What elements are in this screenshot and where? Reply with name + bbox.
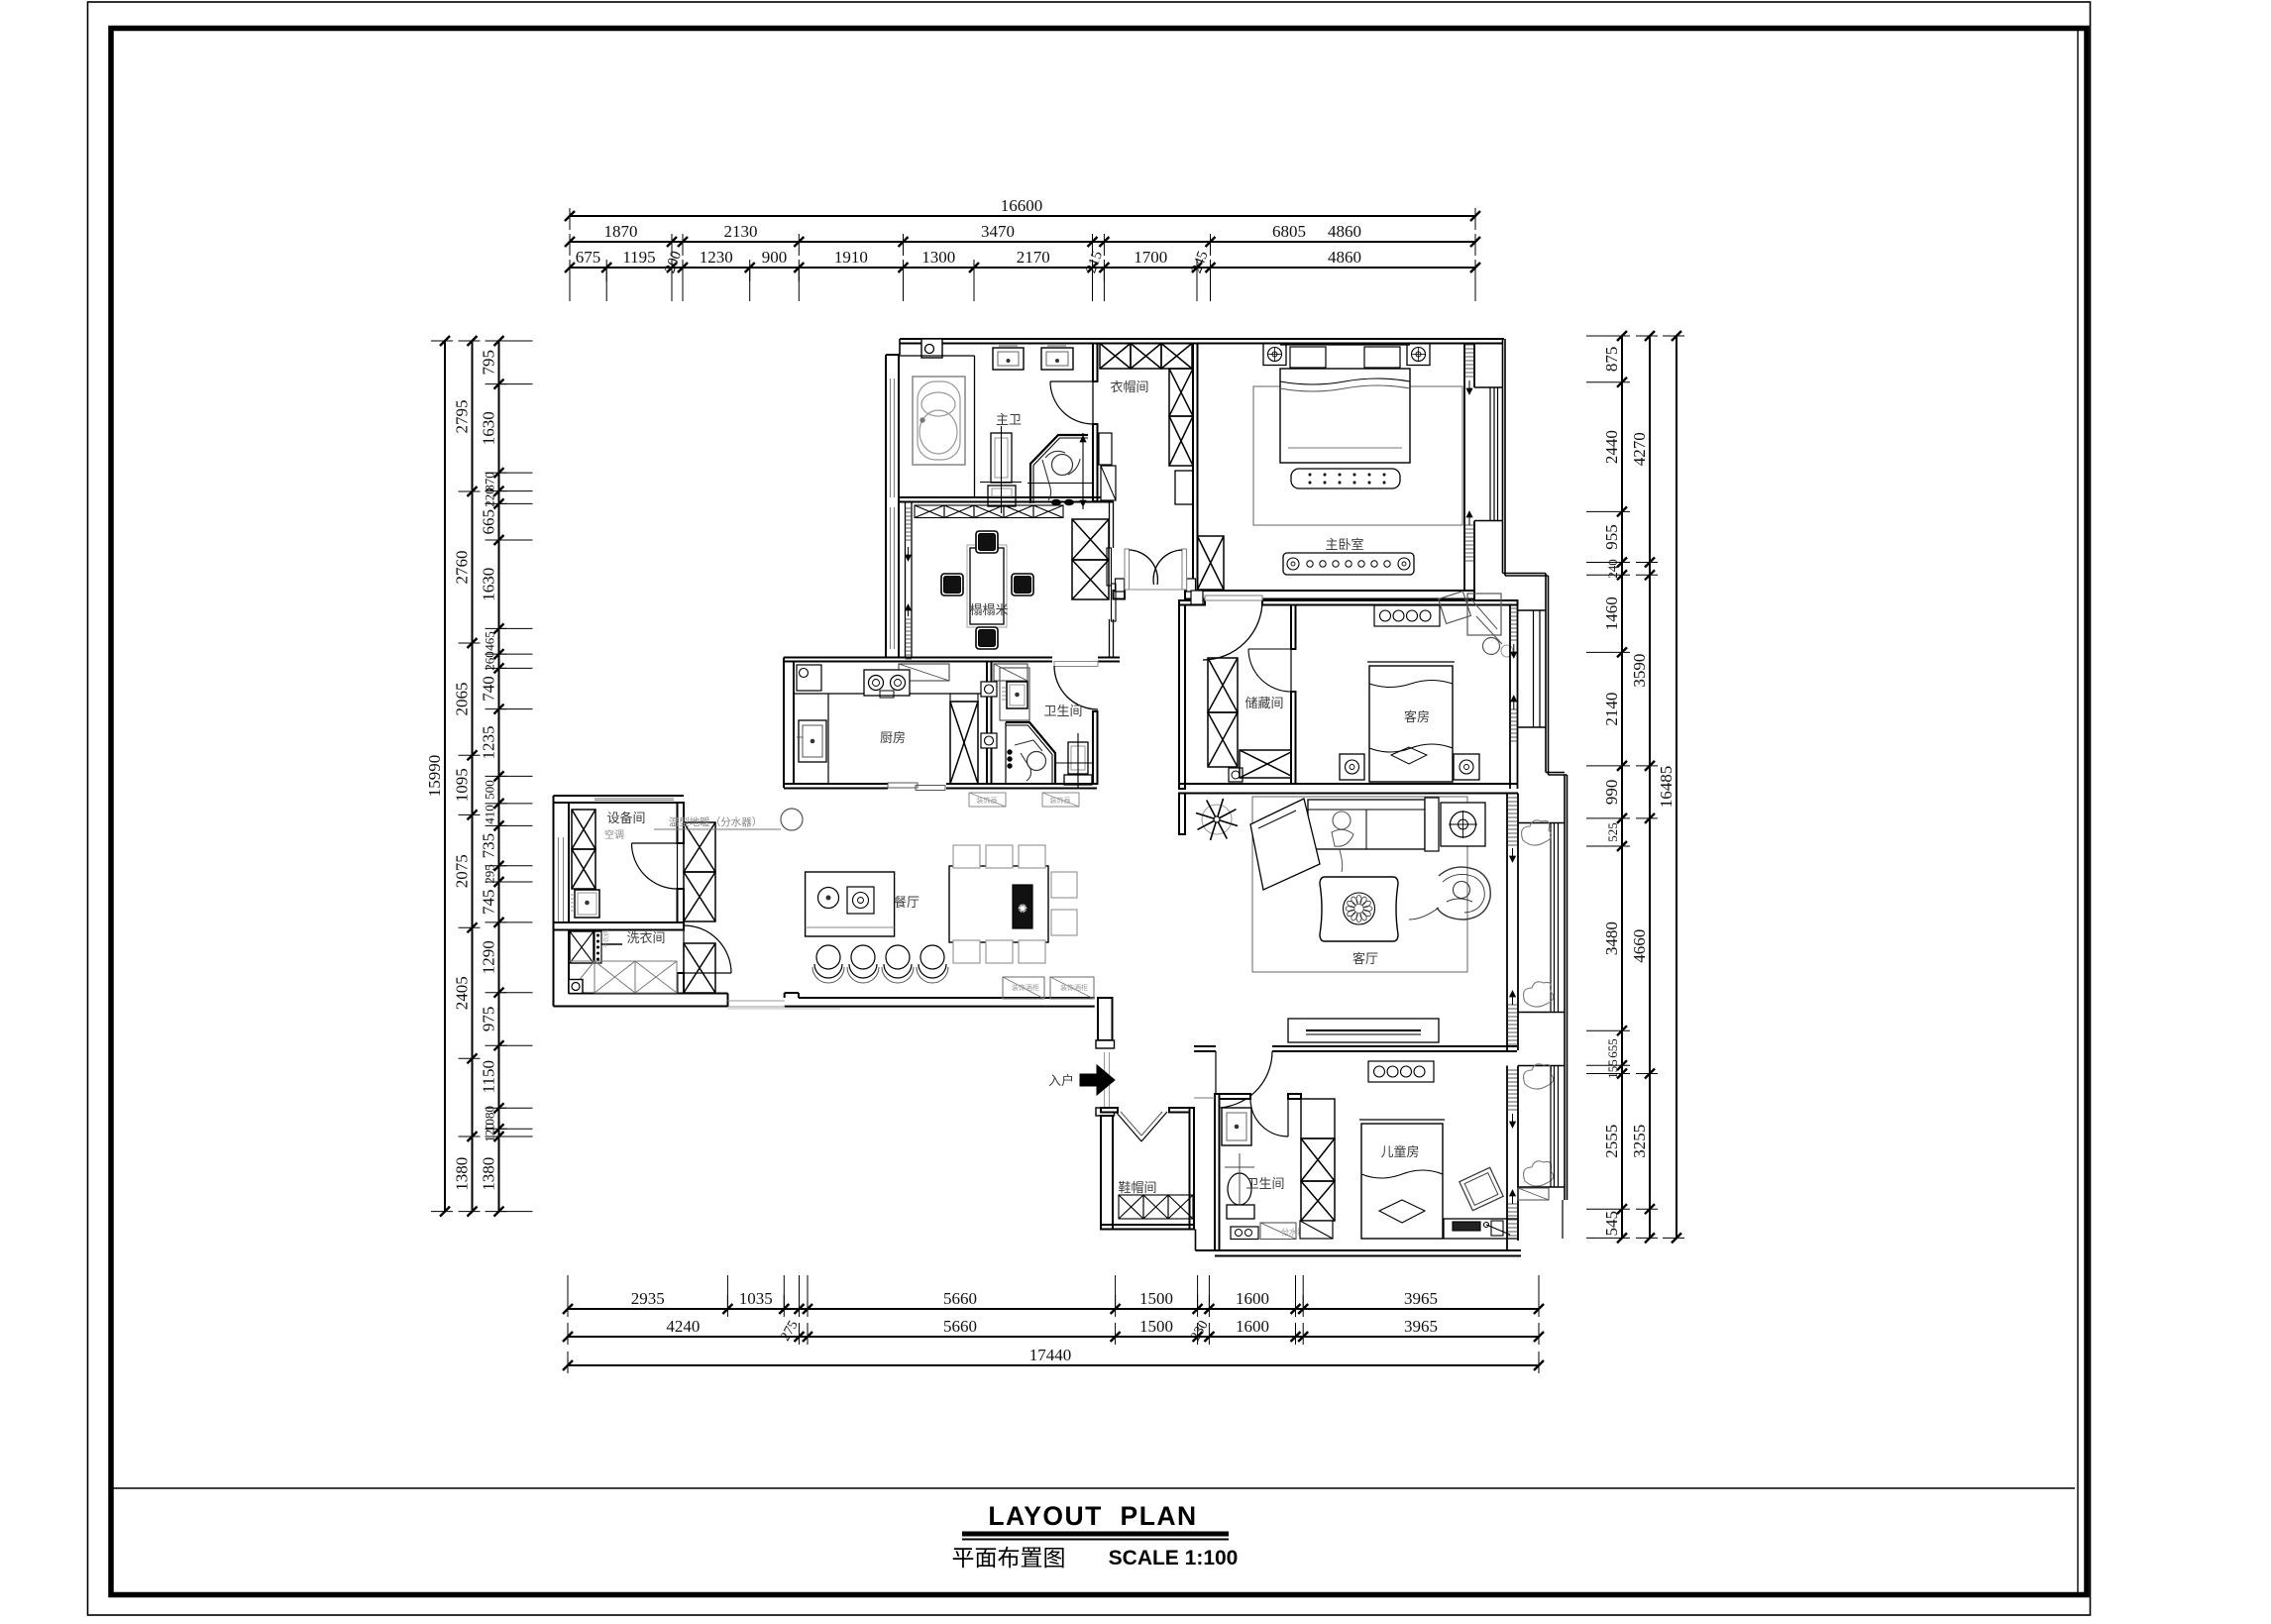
svg-text:875: 875 (1602, 347, 1621, 373)
svg-text:2795: 2795 (453, 400, 472, 434)
svg-text:4240: 4240 (666, 1317, 700, 1336)
svg-text:220: 220 (483, 487, 497, 507)
svg-text:厨房: 厨房 (880, 730, 906, 745)
svg-text:2760: 2760 (453, 551, 472, 585)
svg-text:设备间: 设备间 (606, 811, 645, 825)
svg-text:平面布置图: 平面布置图 (952, 1545, 1066, 1570)
svg-text:主卫: 主卫 (996, 412, 1022, 427)
svg-text:665: 665 (480, 509, 498, 535)
svg-text:1700: 1700 (1134, 248, 1167, 267)
svg-text:3965: 3965 (1404, 1289, 1438, 1308)
svg-text:2075: 2075 (453, 854, 472, 888)
svg-text:260: 260 (483, 651, 497, 671)
svg-text:LAYOUT PLAN: LAYOUT PLAN (988, 1501, 1197, 1531)
svg-text:1150: 1150 (480, 1060, 498, 1093)
svg-text:955: 955 (1602, 524, 1621, 550)
svg-text:主卧室: 主卧室 (1325, 537, 1363, 552)
svg-text:✺: ✺ (1018, 902, 1027, 916)
svg-text:1600: 1600 (1236, 1289, 1269, 1308)
svg-text:1095: 1095 (453, 768, 472, 802)
svg-text:795: 795 (480, 350, 498, 376)
svg-text:衣帽间: 衣帽间 (1110, 379, 1148, 394)
svg-text:900: 900 (762, 248, 788, 267)
svg-text:120: 120 (483, 1123, 497, 1142)
svg-text:儿童房: 儿童房 (1380, 1144, 1419, 1159)
svg-text:卫生间: 卫生间 (1043, 704, 1082, 718)
svg-text:餐厅: 餐厅 (894, 895, 919, 910)
svg-text:客房: 客房 (1404, 709, 1430, 724)
svg-text:465: 465 (483, 631, 497, 651)
svg-text:1500: 1500 (1139, 1317, 1173, 1336)
svg-text:1630: 1630 (480, 411, 498, 445)
svg-text:4270: 4270 (1630, 432, 1649, 466)
svg-text:2170: 2170 (1017, 248, 1050, 267)
svg-text:15990: 15990 (425, 755, 444, 798)
svg-text:1500: 1500 (1139, 1289, 1173, 1308)
svg-text:525: 525 (1605, 822, 1620, 842)
svg-text:客厅: 客厅 (1352, 951, 1378, 966)
svg-text:4860: 4860 (1328, 248, 1361, 267)
svg-text:榻榻米: 榻榻米 (969, 602, 1008, 617)
svg-text:5660: 5660 (943, 1317, 977, 1336)
svg-text:2555: 2555 (1602, 1125, 1621, 1158)
svg-text:3255: 3255 (1630, 1125, 1649, 1158)
svg-text:975: 975 (480, 1007, 498, 1032)
svg-text:2405: 2405 (453, 976, 472, 1010)
svg-text:2140: 2140 (1602, 693, 1621, 726)
svg-text:3590: 3590 (1630, 654, 1649, 688)
svg-text:1230: 1230 (700, 248, 733, 267)
svg-text:1600: 1600 (1236, 1317, 1269, 1336)
svg-text:740: 740 (480, 676, 498, 702)
svg-text:2130: 2130 (724, 222, 758, 241)
svg-text:1300: 1300 (921, 248, 955, 267)
svg-text:1035: 1035 (739, 1289, 773, 1308)
svg-text:1195: 1195 (622, 248, 655, 267)
svg-text:3470: 3470 (981, 222, 1015, 241)
svg-text:2440: 2440 (1602, 430, 1621, 464)
svg-text:745: 745 (480, 890, 498, 916)
svg-text:卫生间: 卫生间 (1245, 1176, 1284, 1191)
svg-text:入户: 入户 (1048, 1073, 1074, 1088)
svg-text:装饰酒柜: 装饰酒柜 (1012, 983, 1039, 992)
svg-text:1630: 1630 (480, 568, 498, 601)
svg-text:990: 990 (1602, 780, 1621, 806)
svg-text:装饰酒柜: 装饰酒柜 (1060, 983, 1088, 992)
svg-text:1910: 1910 (834, 248, 868, 267)
svg-text:3965: 3965 (1404, 1317, 1438, 1336)
svg-text:16600: 16600 (1001, 196, 1043, 215)
svg-text:655: 655 (1605, 1038, 1620, 1058)
svg-text:675: 675 (576, 248, 601, 267)
svg-text:1290: 1290 (480, 940, 498, 974)
svg-text:6805: 6805 (1272, 222, 1306, 241)
svg-text:240: 240 (1605, 559, 1620, 579)
svg-text:1380: 1380 (480, 1157, 498, 1191)
svg-text:洗衣间: 洗衣间 (626, 930, 665, 945)
svg-text:5660: 5660 (943, 1289, 977, 1308)
svg-text:3480: 3480 (1602, 921, 1621, 955)
svg-text:1870: 1870 (604, 222, 638, 241)
svg-text:4860: 4860 (1328, 222, 1361, 241)
svg-text:295: 295 (483, 864, 497, 884)
svg-text:SCALE 1:100: SCALE 1:100 (1109, 1547, 1239, 1570)
svg-text:545: 545 (1602, 1211, 1621, 1237)
svg-text:735: 735 (480, 833, 498, 859)
svg-text:1380: 1380 (453, 1157, 472, 1191)
svg-text:装饰画: 装饰画 (977, 796, 998, 805)
svg-text:4660: 4660 (1630, 929, 1649, 963)
svg-text:500: 500 (483, 780, 497, 800)
svg-text:16485: 16485 (1657, 766, 1676, 809)
svg-text:1460: 1460 (1602, 596, 1621, 630)
svg-text:储藏间: 储藏间 (1244, 696, 1283, 710)
svg-text:17440: 17440 (1029, 1346, 1072, 1364)
svg-text:2065: 2065 (453, 683, 472, 716)
svg-text:155: 155 (1605, 1059, 1620, 1079)
svg-text:装饰画: 装饰画 (1050, 796, 1071, 805)
svg-text:温型地暖（分水器）: 温型地暖（分水器） (669, 815, 763, 828)
svg-text:鞋帽间: 鞋帽间 (1118, 1180, 1156, 1195)
svg-text:干衣机: 干衣机 (602, 930, 610, 948)
svg-text:410: 410 (483, 805, 497, 824)
svg-text:1235: 1235 (480, 726, 498, 760)
svg-text:空调: 空调 (604, 828, 624, 841)
svg-text:2935: 2935 (631, 1289, 665, 1308)
